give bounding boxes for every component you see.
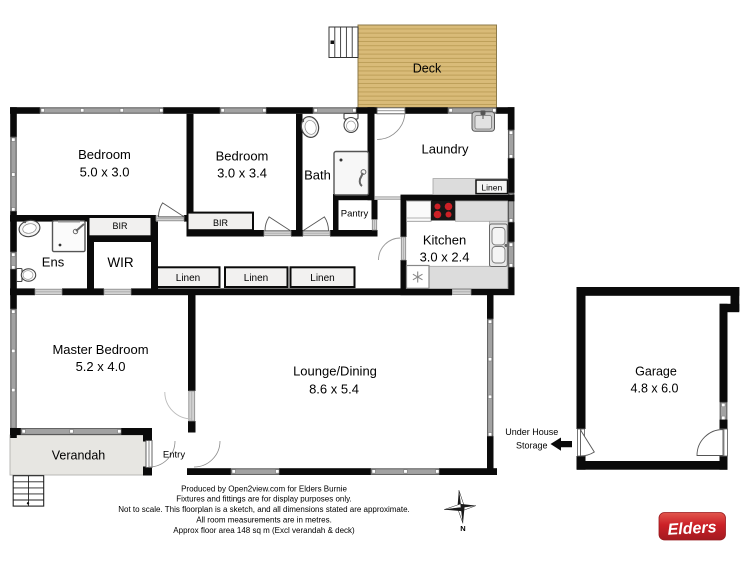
- svg-text:All room measurements are in m: All room measurements are in metres.: [196, 516, 332, 525]
- svg-text:4.8 x 6.0: 4.8 x 6.0: [631, 382, 679, 396]
- svg-text:Not to scale. This floorplan i: Not to scale. This floorplan is a sketch…: [118, 505, 410, 514]
- svg-text:Bedroom: Bedroom: [78, 147, 131, 162]
- svg-text:WIR: WIR: [107, 255, 133, 270]
- svg-text:Entry: Entry: [163, 450, 185, 461]
- svg-text:Produced by Open2view.com for: Produced by Open2view.com for Elders Bur…: [181, 484, 347, 493]
- svg-text:BIR: BIR: [112, 221, 128, 231]
- svg-text:Kitchen: Kitchen: [423, 233, 466, 248]
- svg-text:Linen: Linen: [310, 273, 334, 284]
- svg-text:Approx floor area 148 sq m (Ex: Approx floor area 148 sq m (Excl veranda…: [173, 526, 355, 535]
- svg-text:Verandah: Verandah: [52, 449, 106, 463]
- svg-text:Linen: Linen: [481, 182, 502, 192]
- svg-text:Laundry: Laundry: [422, 142, 469, 157]
- svg-text:Fixtures and fittings are for: Fixtures and fittings are for display pu…: [176, 495, 352, 504]
- svg-text:BIR: BIR: [213, 218, 229, 228]
- svg-text:Linen: Linen: [176, 273, 200, 284]
- svg-text:Master Bedroom: Master Bedroom: [52, 342, 148, 357]
- svg-text:Garage: Garage: [635, 365, 677, 379]
- svg-text:Storage: Storage: [516, 441, 548, 451]
- svg-text:N: N: [460, 524, 465, 533]
- svg-text:Bath: Bath: [304, 168, 331, 183]
- svg-text:Linen: Linen: [244, 273, 268, 284]
- svg-text:Elders: Elders: [667, 519, 717, 539]
- svg-text:Under House: Under House: [505, 427, 558, 437]
- svg-text:8.6 x 5.4: 8.6 x 5.4: [309, 382, 359, 397]
- svg-text:Bedroom: Bedroom: [216, 149, 269, 164]
- svg-text:3.0 x 3.4: 3.0 x 3.4: [217, 166, 267, 181]
- svg-text:5.2 x 4.0: 5.2 x 4.0: [76, 359, 126, 374]
- svg-text:Deck: Deck: [413, 62, 442, 76]
- svg-text:3.0 x 2.4: 3.0 x 2.4: [420, 250, 470, 265]
- svg-text:Ens: Ens: [42, 255, 65, 270]
- svg-text:Pantry: Pantry: [341, 209, 369, 220]
- svg-text:Lounge/Dining: Lounge/Dining: [293, 364, 377, 379]
- svg-text:5.0 x 3.0: 5.0 x 3.0: [80, 165, 130, 180]
